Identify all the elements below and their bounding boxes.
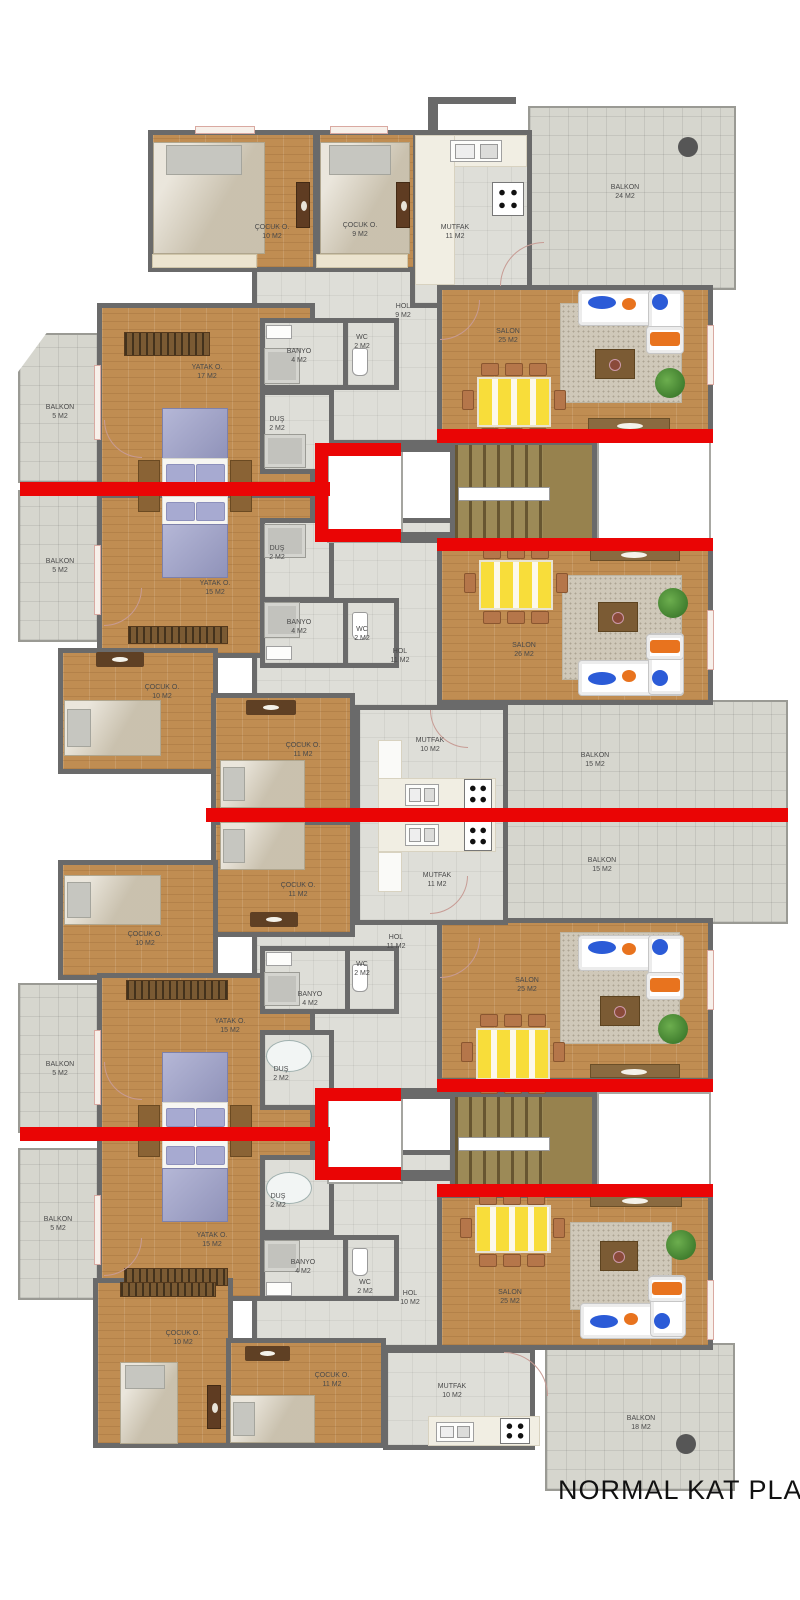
window <box>94 1195 101 1265</box>
sofa-pillow <box>588 941 616 954</box>
single-bed <box>220 822 305 870</box>
coffee-table <box>595 349 635 379</box>
chair <box>556 573 568 593</box>
room-name: BANYO <box>287 347 312 356</box>
section-line <box>315 529 401 542</box>
room-area: 10 M2 <box>128 939 163 948</box>
sofa-pillow <box>652 670 668 686</box>
room-label: HOL10 M2 <box>400 1289 419 1307</box>
room-name: SALON <box>515 976 539 985</box>
room-name: BALKON <box>627 1414 655 1423</box>
room-area: 25 M2 <box>496 336 520 345</box>
room-label: HOL11 M2 <box>391 647 410 665</box>
sofa-pillow <box>588 672 616 685</box>
room-name: ÇOCUK O. <box>166 1329 201 1338</box>
room-label: ÇOCUK O.9 M2 <box>343 221 378 239</box>
room-label: MUTFAK10 M2 <box>438 1382 466 1400</box>
wall-stub-top <box>428 97 516 104</box>
chair <box>479 1254 497 1267</box>
room-area: 4 M2 <box>287 627 312 636</box>
room-label: YATAK O.15 M2 <box>215 1017 246 1035</box>
lounge-cushion <box>650 978 680 992</box>
chair <box>507 611 525 624</box>
lounge-cushion <box>650 640 680 653</box>
lounge-cushion <box>650 332 680 346</box>
single-bed <box>64 700 161 756</box>
room-area: 25 M2 <box>498 1297 522 1306</box>
single-bed <box>64 875 161 925</box>
wardrobe <box>124 332 210 356</box>
single-bed <box>220 760 305 808</box>
room-label: BANYO4 M2 <box>291 1258 316 1276</box>
chair <box>481 363 499 376</box>
dresser <box>96 652 144 667</box>
sofa-pillow <box>654 1313 670 1329</box>
chair <box>553 1218 565 1238</box>
sofa-pillow <box>652 939 668 955</box>
room-area: 2 M2 <box>354 634 370 643</box>
stair-landing-slot <box>458 487 550 501</box>
balcony-15-mid-2 <box>503 812 788 924</box>
room-label: HOL11 M2 <box>387 933 406 951</box>
room-name: BALKON <box>44 1215 72 1224</box>
column <box>678 137 698 157</box>
room-area: 2 M2 <box>269 424 285 433</box>
room-label: ÇOCUK O.11 M2 <box>281 881 316 899</box>
chair <box>483 611 501 624</box>
room-label: BANYO4 M2 <box>287 347 312 365</box>
room-area: 10 M2 <box>166 1338 201 1347</box>
plant <box>666 1230 696 1260</box>
room-name: BALKON <box>588 856 616 865</box>
room-label: BANYO4 M2 <box>298 990 323 1008</box>
chair <box>503 1254 521 1267</box>
room-area: 10 M2 <box>438 1391 466 1400</box>
room-name: ÇOCUK O. <box>315 1371 350 1380</box>
room-label: MUTFAK11 M2 <box>441 223 469 241</box>
room-label: DUŞ2 M2 <box>269 544 285 562</box>
room-name: WC <box>354 625 370 634</box>
stove <box>464 821 492 851</box>
room-area: 15 M2 <box>197 1240 228 1249</box>
dining-table <box>477 377 551 427</box>
single-bed <box>230 1395 315 1443</box>
staircase-top <box>450 440 597 544</box>
room-label: ÇOCUK O.11 M2 <box>286 741 321 759</box>
room-name: MUTFAK <box>416 736 444 745</box>
room-name: ÇOCUK O. <box>255 223 290 232</box>
sofa-pillow <box>590 1315 618 1328</box>
chair <box>527 1254 545 1267</box>
room-label: MUTFAK10 M2 <box>416 736 444 754</box>
toilet <box>352 1248 368 1276</box>
room-name: BALKON <box>46 557 74 566</box>
core-void-top <box>597 440 711 544</box>
coffee-table <box>600 1241 638 1271</box>
plant <box>658 588 688 618</box>
room-area: 11 M2 <box>315 1380 350 1389</box>
shower-tray <box>264 434 306 468</box>
chair <box>554 390 566 410</box>
window <box>94 365 101 440</box>
room-name: YATAK O. <box>200 579 231 588</box>
room-name: ÇOCUK O. <box>286 741 321 750</box>
room-area: 2 M2 <box>354 342 370 351</box>
section-line <box>437 1079 713 1092</box>
room-name: BANYO <box>287 618 312 627</box>
bath-sink <box>266 646 292 660</box>
fridge <box>378 852 402 892</box>
room-name: MUTFAK <box>441 223 469 232</box>
section-line <box>315 443 328 542</box>
sofa-pillow <box>624 1313 638 1325</box>
single-bed <box>120 1362 178 1444</box>
room-area: 11 M2 <box>423 880 451 889</box>
room-name: WC <box>357 1278 373 1287</box>
room-label: ÇOCUK O.10 M2 <box>128 930 163 948</box>
window-bench <box>152 254 257 268</box>
sofa-pillow <box>622 943 636 955</box>
room-area: 10 M2 <box>400 1298 419 1307</box>
double-bed <box>162 1052 228 1104</box>
room-area: 2 M2 <box>354 969 370 978</box>
room-label: BALKON5 M2 <box>46 1060 74 1078</box>
chair <box>462 390 474 410</box>
room-area: 9 M2 <box>395 311 411 320</box>
room-name: HOL <box>400 1289 419 1298</box>
bed-headboard <box>162 496 228 526</box>
window <box>707 1280 714 1340</box>
room-area: 11 M2 <box>387 942 406 951</box>
chair <box>480 1014 498 1027</box>
staircase-bottom <box>450 1092 597 1192</box>
room-name: HOL <box>395 302 411 311</box>
bed-headboard <box>162 1140 228 1170</box>
room-name: HOL <box>387 933 406 942</box>
room-area: 26 M2 <box>512 650 536 659</box>
dining-table <box>476 1028 550 1080</box>
plant <box>655 368 685 398</box>
wardrobe <box>126 980 228 1000</box>
room-name: BALKON <box>46 403 74 412</box>
room-label: SALON25 M2 <box>515 976 539 994</box>
room-area: 9 M2 <box>343 230 378 239</box>
room-label: WC2 M2 <box>354 333 370 351</box>
room-name: HOL <box>391 647 410 656</box>
section-line <box>20 1127 330 1141</box>
elevator-top <box>327 443 403 543</box>
room-area: 15 M2 <box>200 588 231 597</box>
room-name: ÇOCUK O. <box>343 221 378 230</box>
stove <box>464 779 492 809</box>
room-area: 10 M2 <box>255 232 290 241</box>
room-name: DUŞ <box>269 415 285 424</box>
room-name: SALON <box>498 1288 522 1297</box>
chair <box>531 611 549 624</box>
room-area: 5 M2 <box>46 1069 74 1078</box>
plan-title: NORMAL KAT PLANI <box>558 1475 800 1506</box>
bath-sink <box>266 952 292 966</box>
room-area: 18 M2 <box>627 1423 655 1432</box>
room-area: 11 M2 <box>281 890 316 899</box>
room-area: 4 M2 <box>287 356 312 365</box>
room-label: HOL9 M2 <box>395 302 411 320</box>
room-label: YATAK O.15 M2 <box>200 579 231 597</box>
room-area: 10 M2 <box>145 692 180 701</box>
kitchen-sink <box>405 824 439 846</box>
room-label: YATAK O.15 M2 <box>197 1231 228 1249</box>
sofa-pillow <box>588 296 616 309</box>
double-bed <box>162 524 228 578</box>
balcony-15-mid-1 <box>503 700 788 812</box>
kitchen-counter <box>415 135 455 285</box>
balcony-5-bottom-1 <box>18 983 102 1133</box>
room-area: 2 M2 <box>270 1201 286 1210</box>
door-panel <box>296 182 310 228</box>
double-bed <box>162 408 228 460</box>
room-label: DUŞ2 M2 <box>270 1192 286 1210</box>
room-label: BALKON24 M2 <box>611 183 639 201</box>
window <box>707 610 714 670</box>
room-label: SALON25 M2 <box>498 1288 522 1306</box>
room-label: BALKON18 M2 <box>627 1414 655 1432</box>
room-area: 5 M2 <box>46 566 74 575</box>
dresser <box>250 912 298 927</box>
room-name: MUTFAK <box>423 871 451 880</box>
single-bed <box>153 142 265 254</box>
plant <box>658 1014 688 1044</box>
room-area: 11 M2 <box>441 232 469 241</box>
room-area: 11 M2 <box>391 656 410 665</box>
chair <box>460 1218 472 1238</box>
window <box>94 545 101 615</box>
room-label: DUŞ2 M2 <box>273 1065 289 1083</box>
room-area: 15 M2 <box>215 1026 246 1035</box>
chair <box>505 363 523 376</box>
section-line <box>437 538 713 551</box>
chair <box>553 1042 565 1062</box>
room-label: BALKON5 M2 <box>46 557 74 575</box>
room-name: SALON <box>512 641 536 650</box>
room-name: BANYO <box>298 990 323 999</box>
section-line <box>206 808 788 822</box>
window <box>707 950 714 1010</box>
bath-sink <box>266 325 292 339</box>
room-name: BALKON <box>611 183 639 192</box>
dresser <box>246 700 296 715</box>
kitchen-sink <box>405 784 439 806</box>
room-name: YATAK O. <box>215 1017 246 1026</box>
chair <box>464 573 476 593</box>
tv-unit <box>590 1064 680 1078</box>
shower-tray <box>264 972 300 1006</box>
room-area: 2 M2 <box>269 553 285 562</box>
column <box>676 1434 696 1454</box>
room-area: 17 M2 <box>192 372 223 381</box>
room-name: BALKON <box>46 1060 74 1069</box>
room-area: 24 M2 <box>611 192 639 201</box>
door-arc <box>504 1352 548 1396</box>
room-name: YATAK O. <box>192 363 223 372</box>
room-label: SALON26 M2 <box>512 641 536 659</box>
room-label: BALKON5 M2 <box>46 403 74 421</box>
chair <box>461 1042 473 1062</box>
window <box>707 325 714 385</box>
section-line <box>315 1167 401 1180</box>
coffee-table <box>600 996 640 1026</box>
room-area: 15 M2 <box>588 865 616 874</box>
wardrobe <box>120 1282 216 1297</box>
room-name: MUTFAK <box>438 1382 466 1391</box>
core-void-bottom <box>597 1092 711 1192</box>
window-bench <box>316 254 408 268</box>
stove <box>500 1418 530 1444</box>
room-name: YATAK O. <box>197 1231 228 1240</box>
room-name: DUŞ <box>273 1065 289 1074</box>
sofa-pillow <box>652 294 668 310</box>
room-label: ÇOCUK O.10 M2 <box>145 683 180 701</box>
sofa-pillow <box>622 298 636 310</box>
room-name: ÇOCUK O. <box>128 930 163 939</box>
room-area: 4 M2 <box>291 1267 316 1276</box>
section-line <box>437 429 713 443</box>
dining-table <box>479 560 553 610</box>
dresser <box>245 1346 290 1361</box>
room-name: DUŞ <box>270 1192 286 1201</box>
toilet <box>352 348 368 376</box>
room-label: SALON25 M2 <box>496 327 520 345</box>
room-label: ÇOCUK O.10 M2 <box>255 223 290 241</box>
room-area: 15 M2 <box>581 760 609 769</box>
room-name: ÇOCUK O. <box>281 881 316 890</box>
bath-sink <box>266 1282 292 1296</box>
chair <box>528 1014 546 1027</box>
wardrobe <box>128 626 228 644</box>
dining-table <box>475 1205 551 1253</box>
room-area: 11 M2 <box>286 750 321 759</box>
door-panel <box>207 1385 221 1429</box>
room-label: ÇOCUK O.10 M2 <box>166 1329 201 1347</box>
door-panel <box>396 182 410 228</box>
room-label: WC2 M2 <box>354 960 370 978</box>
floor-plan-canvas: ÇOCUK O.10 M2 ÇOCUK O.9 M2 MUTFAK11 M2 B… <box>0 0 800 1600</box>
stove <box>492 182 524 216</box>
room-label: BALKON15 M2 <box>581 751 609 769</box>
room-label: DUŞ2 M2 <box>269 415 285 433</box>
room-name: BANYO <box>291 1258 316 1267</box>
room-name: ÇOCUK O. <box>145 683 180 692</box>
room-label: WC2 M2 <box>354 625 370 643</box>
chair <box>504 1014 522 1027</box>
room-label: BANYO4 M2 <box>287 618 312 636</box>
room-area: 2 M2 <box>273 1074 289 1083</box>
room-name: WC <box>354 333 370 342</box>
chair <box>529 363 547 376</box>
room-label: YATAK O.17 M2 <box>192 363 223 381</box>
room-label: BALKON5 M2 <box>44 1215 72 1233</box>
room-label: BALKON15 M2 <box>588 856 616 874</box>
stair-landing-slot <box>458 1137 550 1151</box>
room-area: 25 M2 <box>515 985 539 994</box>
window <box>195 126 255 134</box>
room-area: 5 M2 <box>44 1224 72 1233</box>
room-name: SALON <box>496 327 520 336</box>
section-line <box>20 482 330 496</box>
window <box>94 1030 101 1105</box>
kitchen-sink <box>436 1422 474 1442</box>
room-name: DUŞ <box>269 544 285 553</box>
room-label: MUTFAK11 M2 <box>423 871 451 889</box>
kitchen-sink <box>450 140 502 162</box>
room-area: 5 M2 <box>46 412 74 421</box>
room-name: BALKON <box>581 751 609 760</box>
fridge <box>378 740 402 780</box>
sofa-pillow <box>622 670 636 682</box>
room-area: 2 M2 <box>357 1287 373 1296</box>
room-label: WC2 M2 <box>357 1278 373 1296</box>
room-area: 10 M2 <box>416 745 444 754</box>
room-name: WC <box>354 960 370 969</box>
room-label: ÇOCUK O.11 M2 <box>315 1371 350 1389</box>
window <box>330 126 388 134</box>
coffee-table <box>598 602 638 632</box>
lounge-cushion <box>652 1282 682 1295</box>
room-area: 4 M2 <box>298 999 323 1008</box>
wall-stub <box>400 1170 452 1181</box>
section-line <box>437 1184 713 1197</box>
double-bed <box>162 1168 228 1222</box>
